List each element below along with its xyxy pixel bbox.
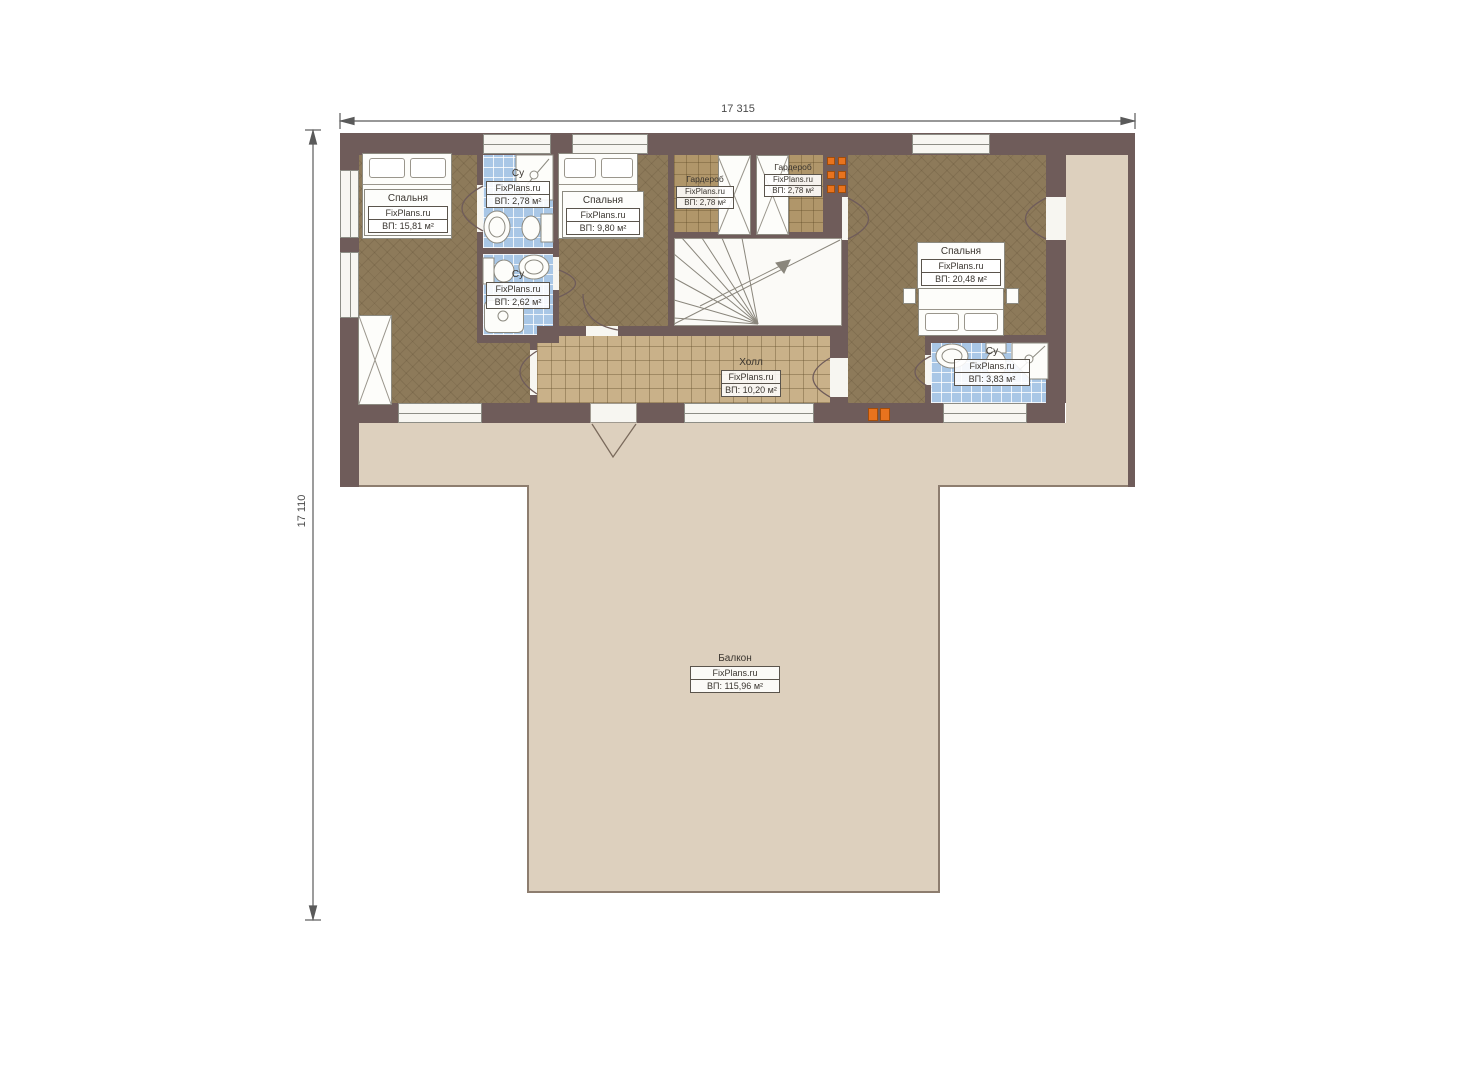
room-label-wardrobe-right: Гардероб FixPlans.ruВП: 2,78 м² bbox=[764, 162, 822, 197]
wall-bath-mid bbox=[483, 248, 553, 254]
vent-marker bbox=[838, 157, 846, 165]
room-brand: FixPlans.ru bbox=[677, 187, 733, 197]
hall-floor bbox=[537, 336, 830, 403]
room-brand: FixPlans.ru bbox=[922, 260, 1000, 272]
door-bedroom-left bbox=[530, 350, 537, 395]
window bbox=[912, 134, 990, 154]
room-label-bedroom-middle: Спальня FixPlans.ruВП: 9,80 м² bbox=[562, 191, 644, 238]
room-area: ВП: 20,48 м² bbox=[922, 272, 1000, 285]
window bbox=[340, 170, 359, 238]
nightstand-icon bbox=[903, 288, 916, 304]
room-label-wardrobe-left: Гардероб FixPlans.ruВП: 2,78 м² bbox=[676, 174, 734, 209]
room-area: ВП: 10,20 м² bbox=[722, 383, 780, 396]
dimension-height: 17 110 bbox=[296, 481, 308, 541]
wall-top bbox=[340, 133, 1135, 155]
room-area: ВП: 2,78 м² bbox=[765, 185, 821, 196]
door-bath-top bbox=[477, 185, 483, 232]
room-name: Су bbox=[486, 268, 550, 281]
room-label-bedroom-left: Спальня FixPlans.ruВП: 15,81 м² bbox=[364, 189, 452, 236]
balcony-edge bbox=[938, 485, 1128, 487]
door-bathroom-right bbox=[925, 355, 931, 385]
staircase bbox=[674, 238, 842, 326]
room-area: ВП: 2,62 м² bbox=[487, 295, 549, 308]
wall-hall-north bbox=[537, 326, 848, 336]
window bbox=[943, 403, 1027, 423]
vent-marker bbox=[827, 185, 835, 193]
wall-bathright-north bbox=[925, 335, 1046, 343]
room-name: Су bbox=[486, 167, 550, 180]
window bbox=[572, 134, 648, 154]
bed-icon bbox=[918, 288, 1004, 336]
wall-right-outer bbox=[1128, 155, 1135, 487]
room-name: Балкон bbox=[690, 652, 780, 665]
room-brand: FixPlans.ru bbox=[691, 667, 779, 679]
door-hall-east bbox=[830, 358, 848, 397]
floor-plan: 17 315 17 110 Спальня FixPlans.ruВП: 15,… bbox=[0, 0, 1474, 1080]
room-name: Холл bbox=[721, 356, 781, 369]
room-name: Гардероб bbox=[764, 162, 822, 173]
room-brand: FixPlans.ru bbox=[369, 207, 447, 219]
room-label-balcony: Балкон FixPlans.ruВП: 115,96 м² bbox=[690, 652, 780, 693]
room-label-hall: Холл FixPlans.ruВП: 10,20 м² bbox=[721, 356, 781, 397]
room-area: ВП: 9,80 м² bbox=[567, 221, 639, 234]
room-label-bathroom-top: Су FixPlans.ruВП: 2,78 м² bbox=[486, 167, 550, 208]
door-bedroom-middle bbox=[586, 326, 618, 336]
room-label-bathroom-middle: Су FixPlans.ruВП: 2,62 м² bbox=[486, 268, 550, 309]
vent-marker bbox=[827, 157, 835, 165]
vent-marker bbox=[827, 171, 835, 179]
room-brand: FixPlans.ru bbox=[487, 182, 549, 194]
wall-bath-south bbox=[477, 335, 559, 343]
room-label-bathroom-right: Су FixPlans.ruВП: 3,83 м² bbox=[954, 345, 1030, 386]
room-area: ВП: 115,96 м² bbox=[691, 679, 779, 692]
vent-marker bbox=[838, 185, 846, 193]
room-name: Спальня bbox=[566, 194, 640, 207]
room-brand: FixPlans.ru bbox=[567, 209, 639, 221]
room-brand: FixPlans.ru bbox=[722, 371, 780, 383]
window bbox=[483, 134, 551, 154]
window bbox=[684, 403, 814, 423]
room-name: Спальня bbox=[921, 245, 1001, 258]
door-bedroom-right-balcony bbox=[1046, 197, 1066, 240]
room-area: ВП: 15,81 м² bbox=[369, 219, 447, 232]
balcony-edge bbox=[359, 485, 529, 487]
vent-marker bbox=[880, 408, 890, 421]
window bbox=[340, 252, 359, 318]
balcony-band bbox=[359, 423, 1128, 487]
room-label-bedroom-right: Спальня FixPlans.ruВП: 20,48 м² bbox=[917, 242, 1005, 289]
room-area: ВП: 2,78 м² bbox=[487, 194, 549, 207]
vent-marker bbox=[868, 408, 878, 421]
room-name: Су bbox=[954, 345, 1030, 358]
room-brand: FixPlans.ru bbox=[955, 360, 1029, 372]
wall-bedroom-right-east bbox=[1046, 155, 1066, 403]
room-area: ВП: 3,83 м² bbox=[955, 372, 1029, 385]
room-name: Спальня bbox=[368, 192, 448, 205]
window bbox=[398, 403, 482, 423]
room-name: Гардероб bbox=[676, 174, 734, 185]
door-bedroom-right-west bbox=[842, 197, 848, 240]
nightstand-icon bbox=[1006, 288, 1019, 304]
room-brand: FixPlans.ru bbox=[487, 283, 549, 295]
room-area: ВП: 2,78 м² bbox=[677, 197, 733, 208]
room-brand: FixPlans.ru bbox=[765, 175, 821, 185]
vent-marker bbox=[838, 171, 846, 179]
door-bath-middle bbox=[553, 257, 559, 290]
dimension-width: 17 315 bbox=[690, 103, 786, 115]
closet-icon bbox=[358, 315, 392, 405]
door-balcony bbox=[590, 403, 637, 423]
